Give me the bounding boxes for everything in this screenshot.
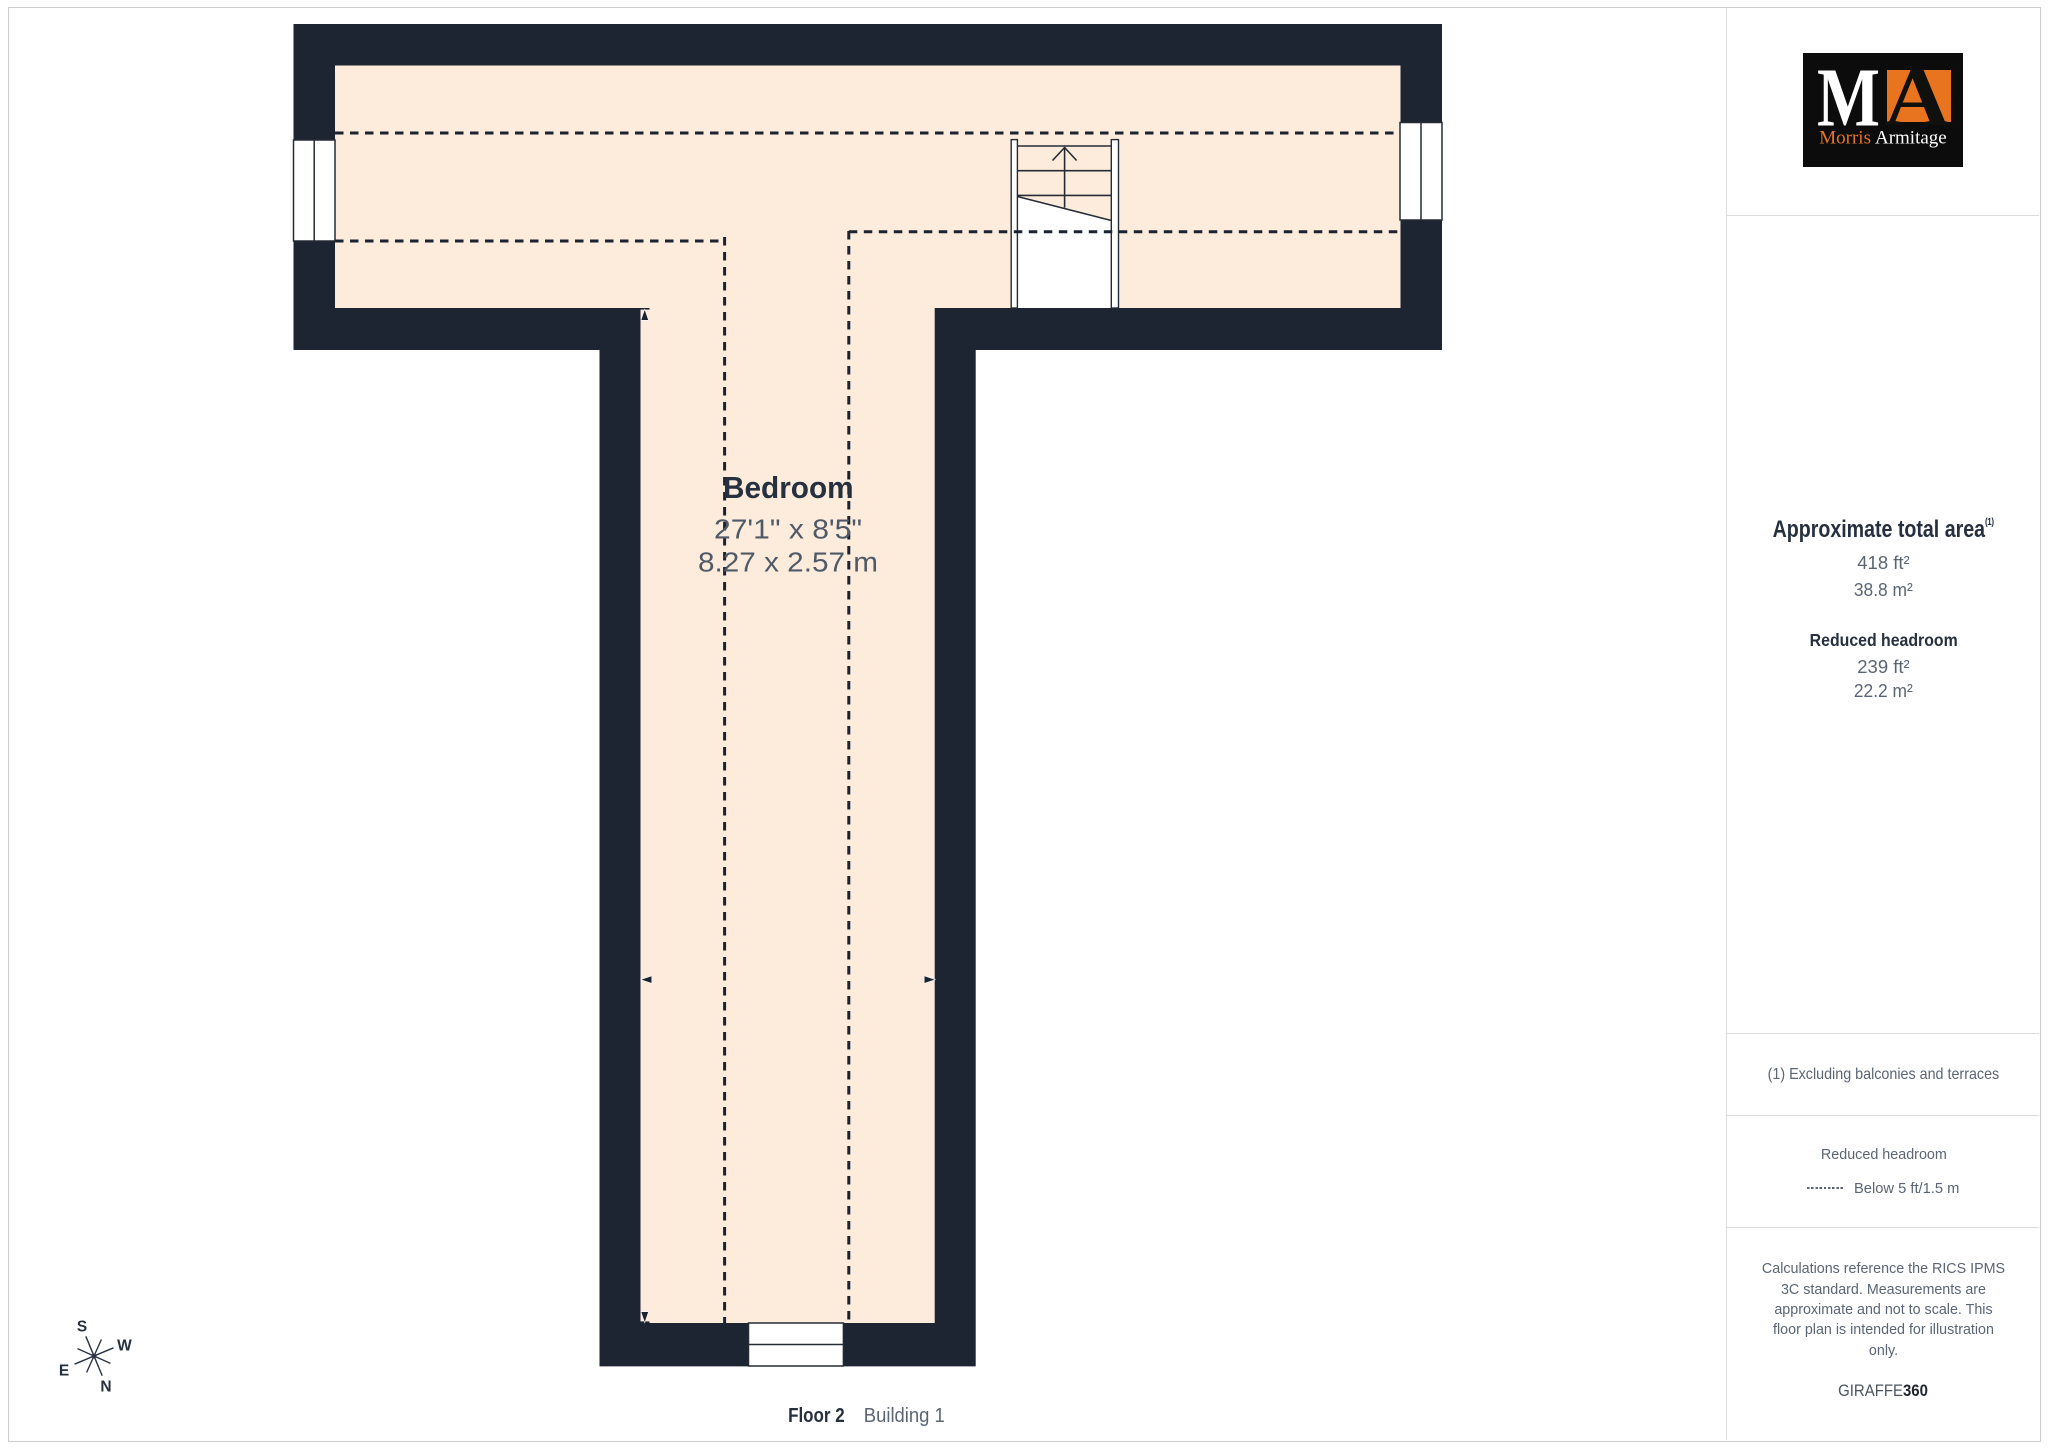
svg-text:S: S: [77, 1319, 87, 1336]
svg-text:27'1" x 8'5": 27'1" x 8'5": [714, 513, 862, 544]
svg-text:MorrisArmitage: MorrisArmitage: [1819, 128, 1947, 149]
svg-text:Bedroom: Bedroom: [723, 470, 854, 505]
svg-text:Floor 2: Floor 2: [788, 1405, 845, 1427]
svg-text:8.27 x 2.57 m: 8.27 x 2.57 m: [698, 546, 878, 577]
svg-text:N: N: [100, 1379, 111, 1396]
svg-text:Building 1: Building 1: [864, 1405, 945, 1427]
svg-text:E: E: [59, 1363, 69, 1380]
svg-text:W: W: [117, 1338, 132, 1355]
